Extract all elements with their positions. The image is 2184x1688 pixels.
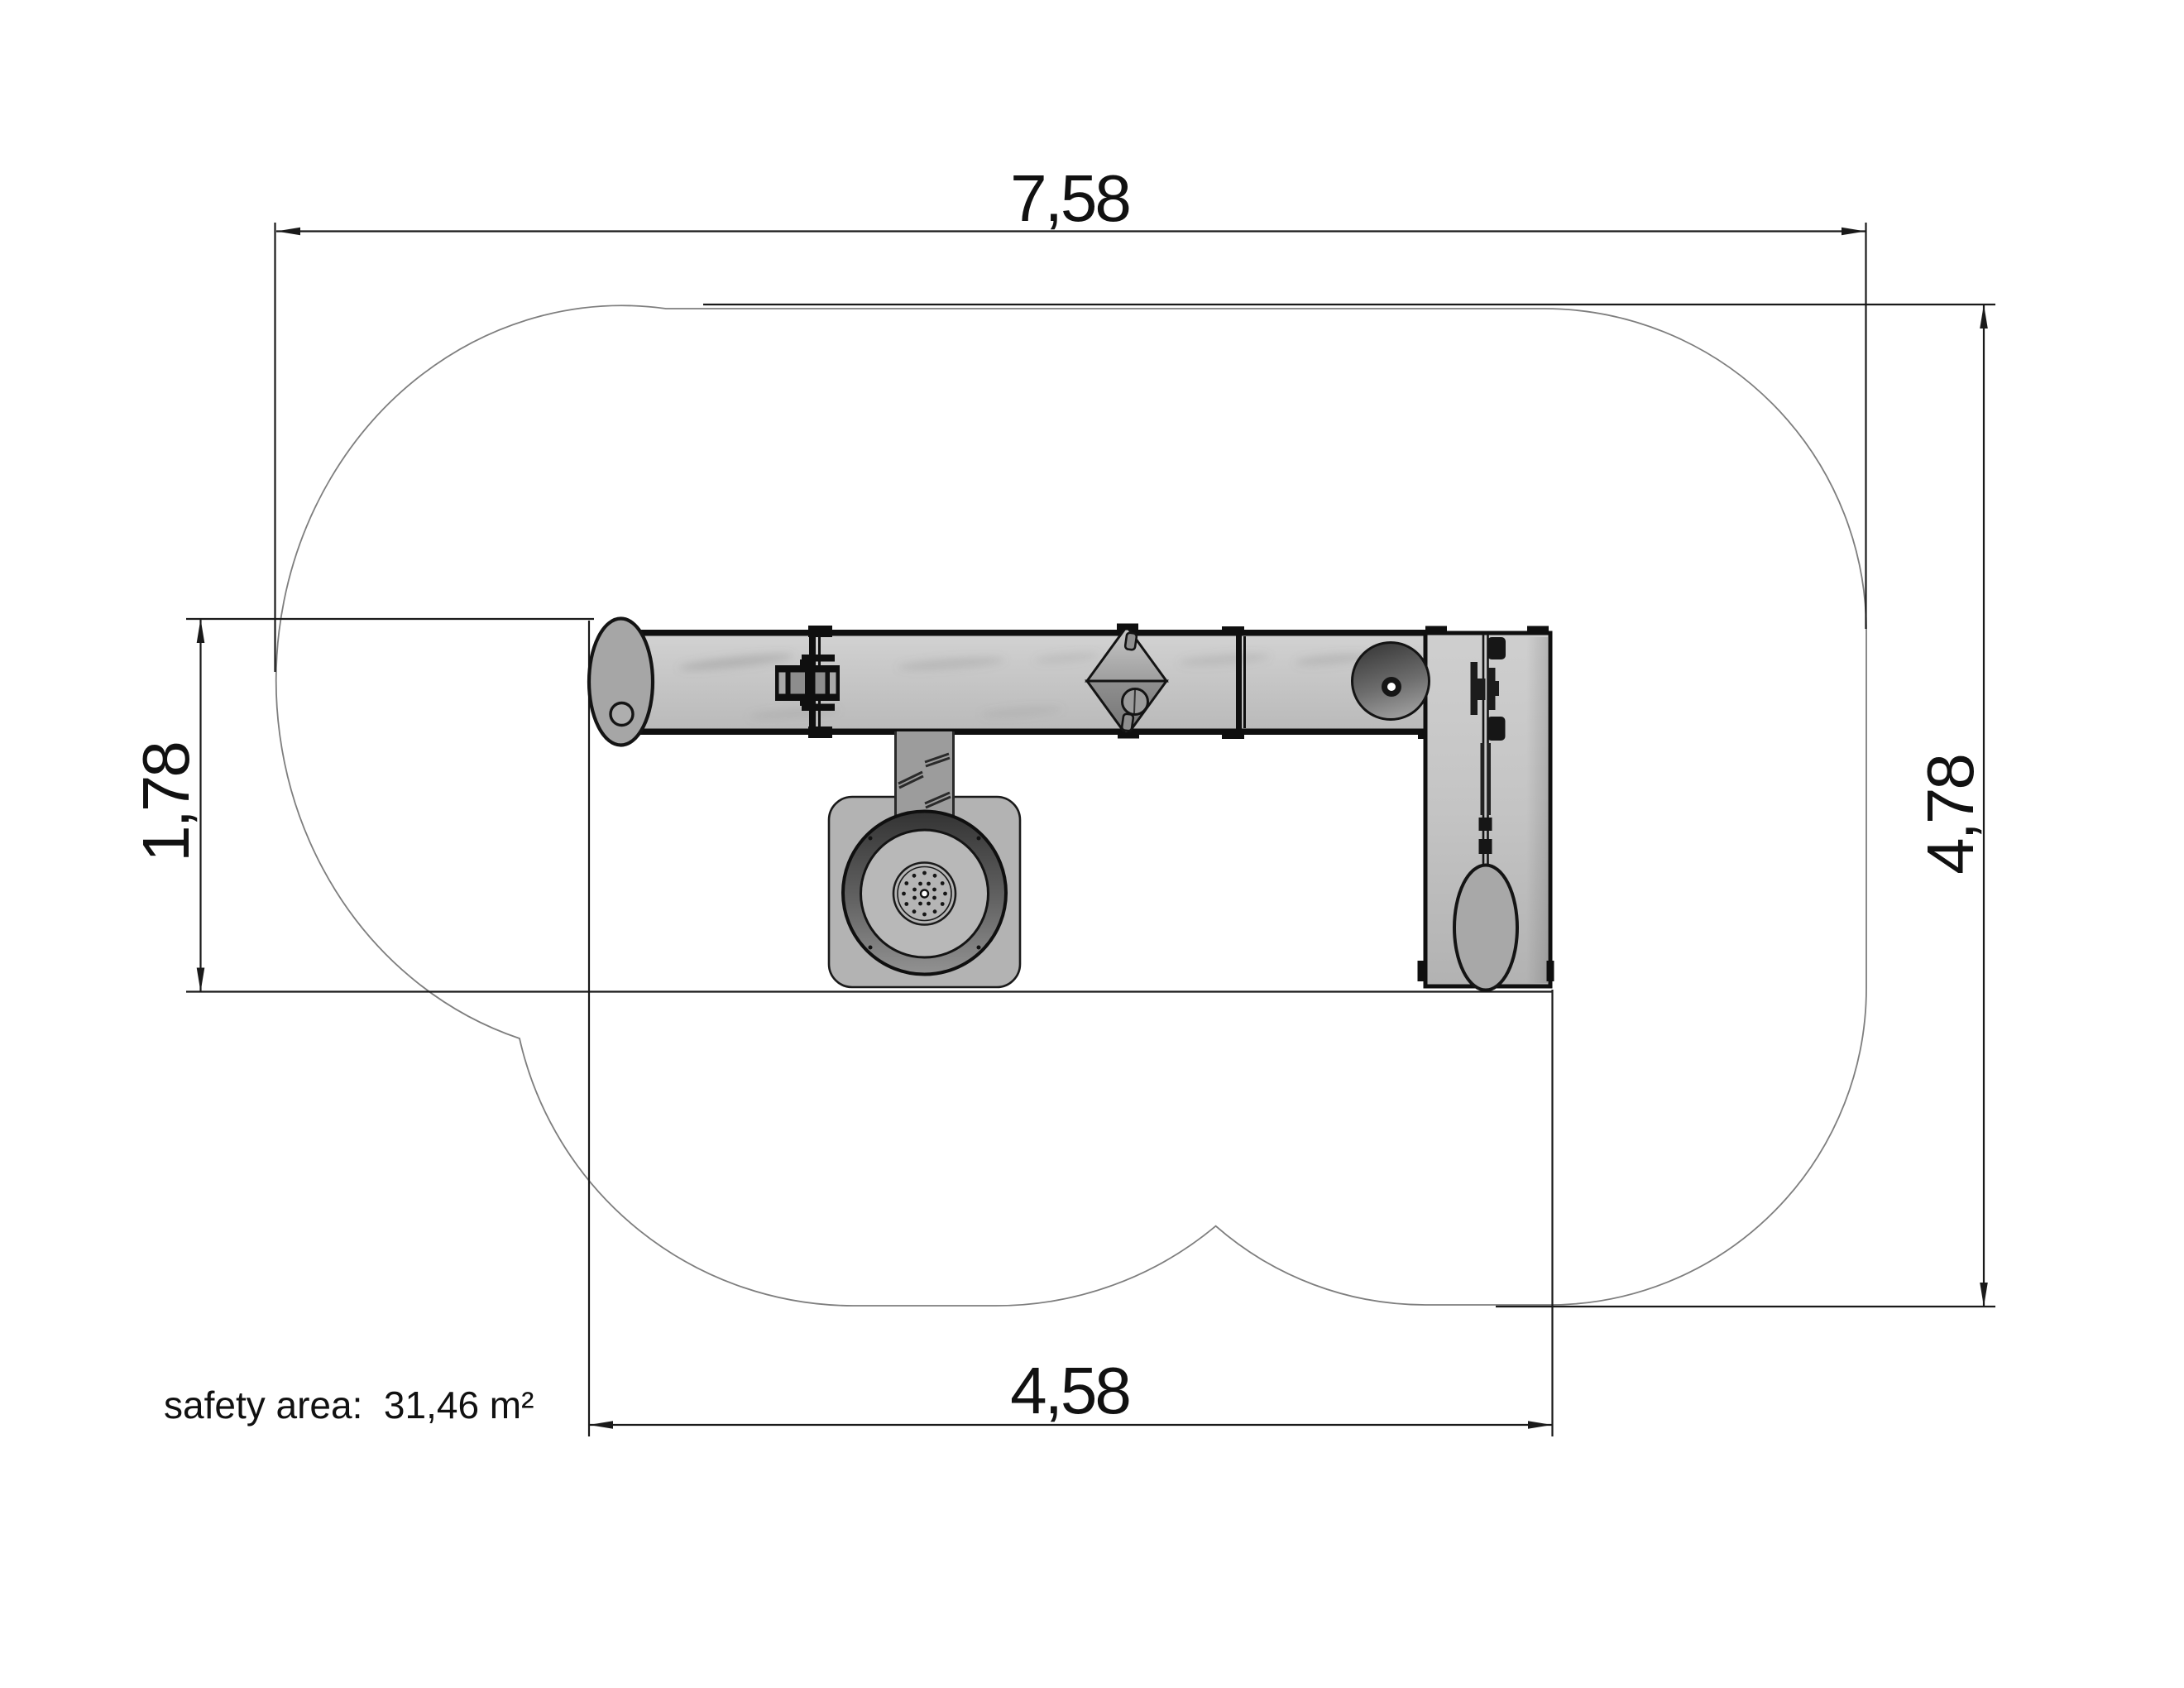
svg-text:4,58: 4,58 [1010,1354,1129,1427]
svg-text:1,78: 1,78 [129,743,203,862]
svg-text:4,78: 4,78 [1913,755,1987,875]
svg-text:safety area: 31,46 m²: safety area: 31,46 m² [164,1383,534,1427]
svg-text:7,58: 7,58 [1010,161,1129,235]
